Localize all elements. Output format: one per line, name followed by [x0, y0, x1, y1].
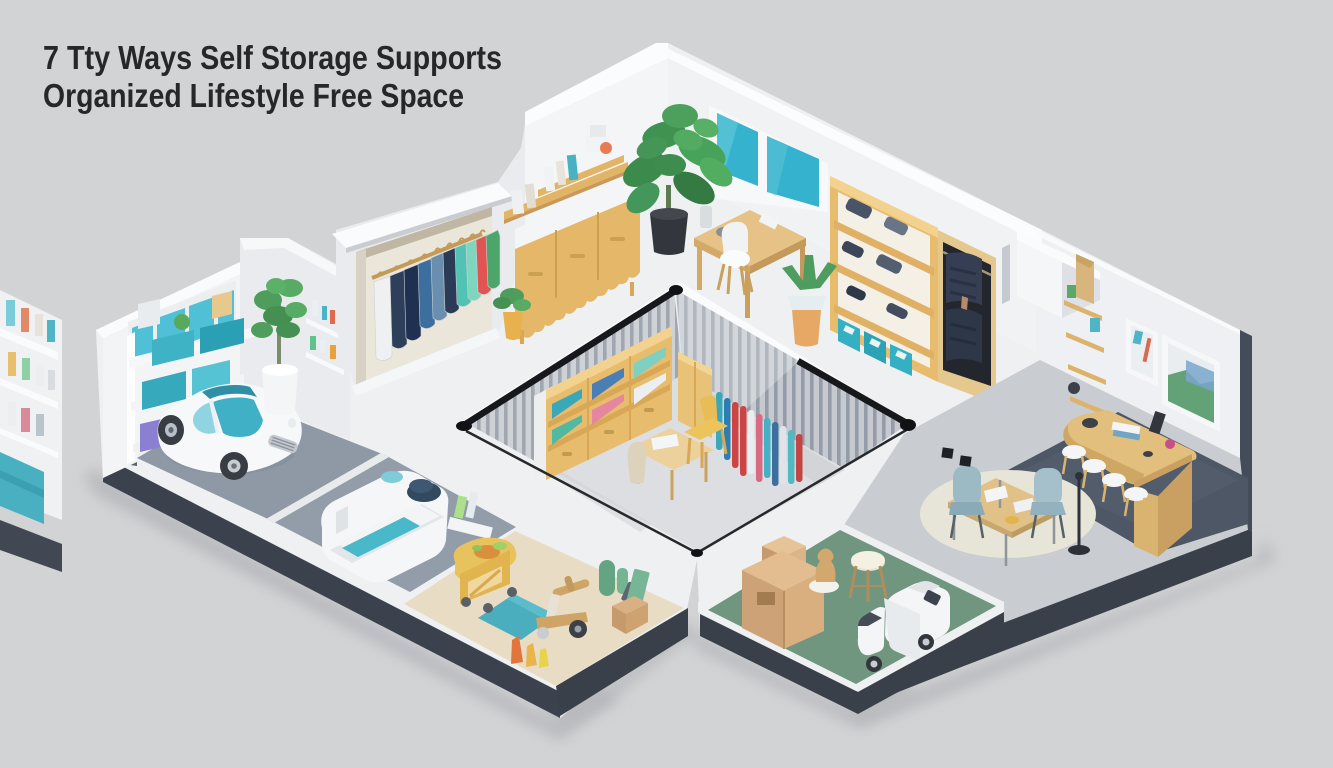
svg-text:7 Tty Ways Self Storage Suppor: 7 Tty Ways Self Storage Supports — [43, 40, 502, 77]
svg-text:Organized Lifestyle Free Space: Organized Lifestyle Free Space — [43, 78, 464, 115]
